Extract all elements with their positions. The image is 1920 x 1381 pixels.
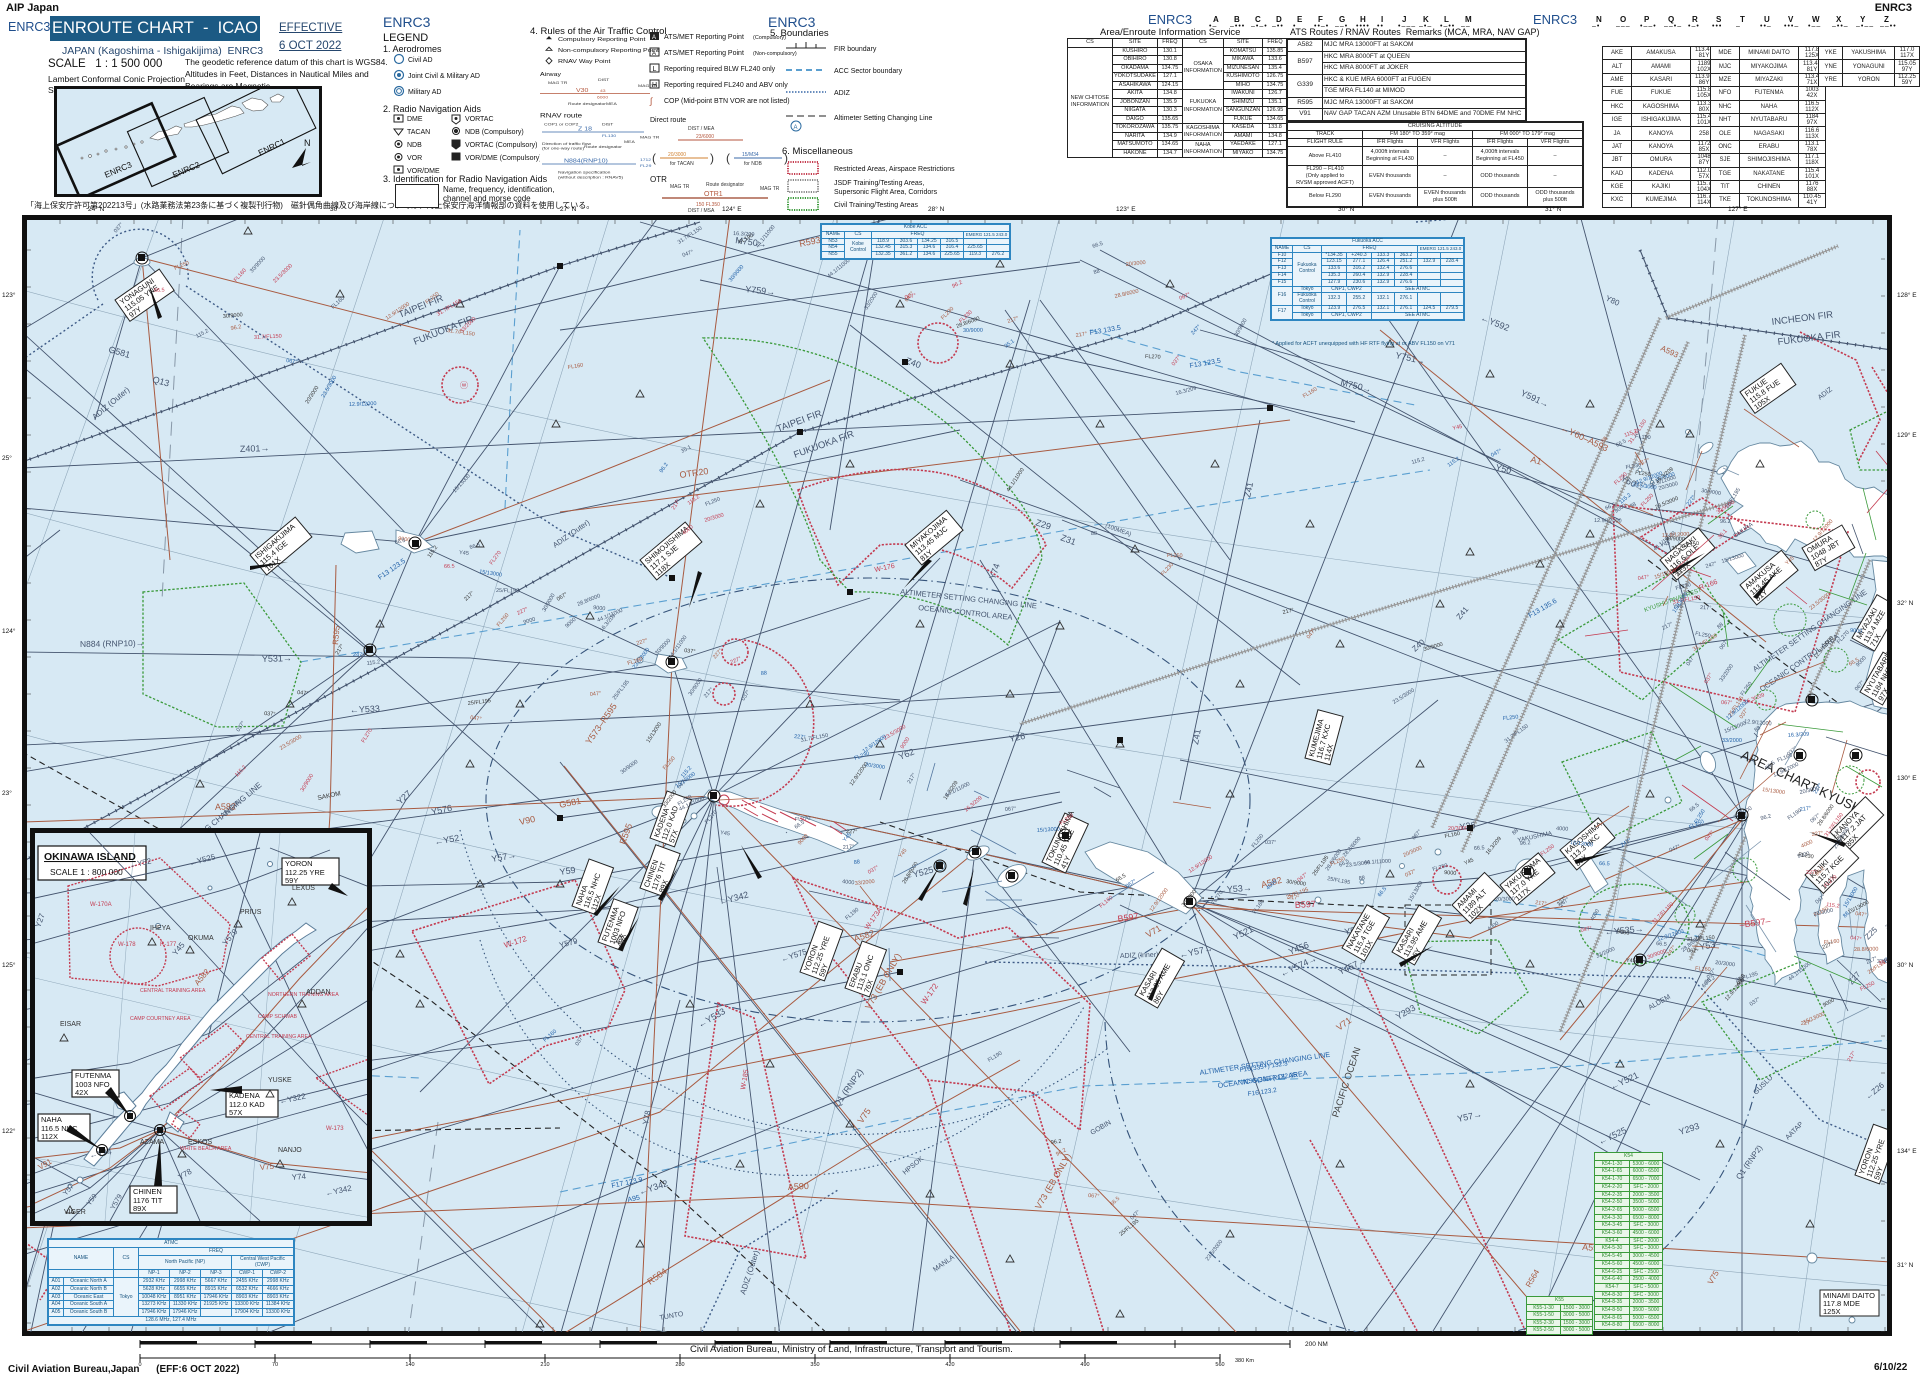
svg-text:66.5: 66.5 xyxy=(1615,438,1627,448)
svg-text:FL160: FL160 xyxy=(1098,895,1114,910)
svg-text:A593: A593 xyxy=(1659,344,1680,360)
svg-text:16.3/209: 16.3/209 xyxy=(1485,836,1503,856)
svg-text:F13 123.5: F13 123.5 xyxy=(1189,358,1221,370)
svg-text:V90: V90 xyxy=(518,814,536,827)
svg-text:4000: 4000 xyxy=(1556,826,1569,833)
svg-text:15/13000: 15/13000 xyxy=(1762,787,1786,796)
svg-text:V71: V71 xyxy=(1144,923,1163,940)
svg-text:Y579: Y579 xyxy=(558,936,579,950)
svg-text:4000: 4000 xyxy=(1590,908,1601,922)
svg-text:FL270: FL270 xyxy=(1836,630,1851,646)
svg-text:OKINAWA ISLAND: OKINAWA ISLAND xyxy=(44,851,136,863)
svg-text:25/FL195: 25/FL195 xyxy=(468,698,492,707)
svg-text:WHITE BEACH AREA: WHITE BEACH AREA xyxy=(180,1146,232,1152)
svg-text:TUNTO: TUNTO xyxy=(659,1311,684,1322)
svg-text:NANJO: NANJO xyxy=(278,1147,302,1154)
svg-text:Q1 (RNP2): Q1 (RNP2) xyxy=(1734,1143,1764,1181)
svg-text:12.9/12000: 12.9/12000 xyxy=(1188,854,1214,874)
svg-text:F13 123.5: F13 123.5 xyxy=(377,558,407,582)
svg-text:FL250: FL250 xyxy=(705,496,722,507)
svg-text:115.2: 115.2 xyxy=(1447,456,1461,469)
svg-text:OMURA: OMURA xyxy=(1733,522,1755,540)
svg-text:Y80: Y80 xyxy=(1604,294,1621,308)
svg-text:FL250: FL250 xyxy=(1540,844,1556,858)
svg-text:33/2000: 33/2000 xyxy=(855,879,875,887)
svg-text:Y45: Y45 xyxy=(1452,424,1463,432)
svg-text:20/3000: 20/3000 xyxy=(1495,896,1515,903)
svg-text:IHEYA: IHEYA xyxy=(150,925,171,932)
svg-text:247°: 247° xyxy=(1620,838,1633,849)
svg-text:←Y57→: ←Y57→ xyxy=(1178,943,1213,960)
svg-text:PACIFIC OCEAN: PACIFIC OCEAN xyxy=(1330,1046,1363,1119)
svg-text:FL250: FL250 xyxy=(662,756,677,772)
svg-text:30/9000: 30/9000 xyxy=(223,312,243,320)
svg-text:Y74: Y74 xyxy=(291,1172,307,1182)
svg-text:217°: 217° xyxy=(1661,621,1674,632)
svg-text:FL250: FL250 xyxy=(1740,681,1754,697)
svg-text:490: 490 xyxy=(1080,1362,1089,1366)
svg-text:067°: 067° xyxy=(1719,638,1731,651)
svg-text:Z41: Z41 xyxy=(1190,728,1203,745)
svg-text:89X: 89X xyxy=(133,1204,146,1213)
svg-text:ⓦ: ⓦ xyxy=(460,381,468,390)
svg-text:23.5/3000: 23.5/3000 xyxy=(321,375,339,399)
svg-text:037°: 037° xyxy=(684,648,696,655)
svg-text:M750→: M750→ xyxy=(1340,377,1373,394)
svg-text:Z29: Z29 xyxy=(1034,517,1052,531)
svg-text:247°: 247° xyxy=(1190,324,1202,336)
svg-text:067°: 067° xyxy=(556,592,569,603)
svg-text:Z25: Z25 xyxy=(1863,925,1880,942)
svg-text:037°: 037° xyxy=(741,689,752,702)
svg-text:W-178: W-178 xyxy=(118,942,136,948)
svg-text:047°: 047° xyxy=(682,249,695,259)
svg-text:067°: 067° xyxy=(1005,806,1017,813)
svg-text:←Y533: ←Y533 xyxy=(350,703,381,715)
svg-text:FL160: FL160 xyxy=(567,363,583,371)
svg-text:GOBIN: GOBIN xyxy=(1090,1119,1113,1136)
svg-text:57X: 57X xyxy=(229,1108,242,1117)
svg-text:W-173: W-173 xyxy=(326,1126,344,1132)
svg-text:FL160: FL160 xyxy=(1302,387,1318,400)
svg-text:15/13000: 15/13000 xyxy=(1802,1011,1825,1025)
svg-text:CENTRAL TRAINING AREA: CENTRAL TRAINING AREA xyxy=(246,1034,312,1040)
svg-text:047°: 047° xyxy=(1637,574,1649,582)
svg-text:037°: 037° xyxy=(867,865,880,876)
svg-text:16.3/209: 16.3/209 xyxy=(1788,732,1810,739)
svg-text:23.5/3000: 23.5/3000 xyxy=(1346,860,1371,869)
svg-text:15/13000: 15/13000 xyxy=(1654,567,1678,580)
svg-text:Z31: Z31 xyxy=(1059,532,1077,547)
svg-text:FL230: FL230 xyxy=(940,306,955,321)
svg-text:037°: 037° xyxy=(1265,840,1276,846)
svg-text:88: 88 xyxy=(1091,531,1097,537)
svg-text:037°: 037° xyxy=(1704,672,1715,685)
svg-text:YORON: YORON xyxy=(285,859,313,868)
svg-text:047°: 047° xyxy=(1850,935,1862,943)
svg-text:FL190: FL190 xyxy=(1787,808,1803,822)
svg-text:66.5: 66.5 xyxy=(1474,845,1485,852)
svg-text:FL250: FL250 xyxy=(1640,493,1655,509)
svg-text:9000: 9000 xyxy=(523,617,536,626)
svg-text:9000: 9000 xyxy=(564,617,577,630)
svg-text:Y74: Y74 xyxy=(987,562,1001,580)
svg-text:037°: 037° xyxy=(1404,868,1417,878)
svg-text:28.8/6000: 28.8/6000 xyxy=(1854,947,1879,953)
svg-text:067°: 067° xyxy=(286,358,298,366)
svg-text:88: 88 xyxy=(1511,828,1520,837)
svg-text:GUSLU: GUSLU xyxy=(1752,1074,1774,1096)
svg-text:FL250: FL250 xyxy=(1859,981,1876,993)
svg-text:067°: 067° xyxy=(1125,878,1138,889)
svg-text:33/2000: 33/2000 xyxy=(1722,738,1742,744)
svg-text:217°: 217° xyxy=(463,590,475,602)
svg-text:247°: 247° xyxy=(353,652,365,658)
svg-text:12.9/12000: 12.9/12000 xyxy=(1744,719,1772,727)
svg-text:247°: 247° xyxy=(1705,561,1718,570)
svg-text:067°: 067° xyxy=(1411,829,1423,841)
svg-text:Y759→: Y759→ xyxy=(745,284,776,297)
svg-text:Y57→: Y57→ xyxy=(1456,1109,1483,1124)
svg-text:88: 88 xyxy=(1900,657,1906,663)
svg-text:R593: R593 xyxy=(798,235,821,249)
svg-text:25/FL195: 25/FL195 xyxy=(612,679,631,701)
svg-text:Y59: Y59 xyxy=(559,865,576,877)
svg-text:Z401→: Z401→ xyxy=(240,443,270,454)
svg-text:FUTENMA: FUTENMA xyxy=(75,1071,111,1080)
svg-text:20/3000: 20/3000 xyxy=(1402,845,1423,859)
svg-text:047°: 047° xyxy=(590,691,602,698)
svg-text:G581: G581 xyxy=(107,344,131,360)
svg-text:66.5: 66.5 xyxy=(469,542,481,551)
svg-text:←Y342: ←Y342 xyxy=(718,889,750,906)
svg-text:20/3000: 20/3000 xyxy=(1715,960,1735,968)
svg-text:217°: 217° xyxy=(1007,316,1020,325)
svg-text:0: 0 xyxy=(138,1338,142,1340)
svg-text:Y573–R595: Y573–R595 xyxy=(583,701,618,746)
svg-text:Q13: Q13 xyxy=(151,374,170,388)
svg-text:ADDAN: ADDAN xyxy=(306,989,331,996)
svg-text:FL160: FL160 xyxy=(233,268,248,284)
svg-text:9000: 9000 xyxy=(1614,503,1628,515)
svg-text:28.8/6000: 28.8/6000 xyxy=(1114,289,1139,300)
svg-text:Y293: Y293 xyxy=(1394,1003,1417,1022)
svg-text:←Y574→: ←Y574→ xyxy=(1279,953,1319,979)
svg-text:560: 560 xyxy=(1215,1362,1224,1366)
svg-text:SAKOM: SAKOM xyxy=(317,790,341,802)
svg-text:FL190: FL190 xyxy=(844,907,860,922)
svg-text:210: 210 xyxy=(540,1362,549,1366)
svg-text:←Y52: ←Y52 xyxy=(434,833,460,847)
svg-text:20/3000: 20/3000 xyxy=(865,762,886,771)
svg-text:4000: 4000 xyxy=(842,879,855,886)
svg-text:A95: A95 xyxy=(627,1194,641,1203)
svg-text:20/3000: 20/3000 xyxy=(704,512,725,524)
svg-text:120: 120 xyxy=(825,1338,836,1340)
svg-text:CHINEN: CHINEN xyxy=(133,1187,162,1196)
svg-text:12.9/12000: 12.9/12000 xyxy=(1594,518,1622,524)
svg-text:047°: 047° xyxy=(1704,830,1716,843)
svg-text:Y45: Y45 xyxy=(459,550,469,557)
svg-text:227°: 227° xyxy=(636,638,649,647)
svg-text:FL270: FL270 xyxy=(704,810,719,826)
svg-text:←Y533: ←Y533 xyxy=(696,1006,727,1030)
svg-text:ADIZ (Outer): ADIZ (Outer) xyxy=(1439,202,1486,220)
svg-text:31.7/FL150: 31.7/FL150 xyxy=(1651,901,1675,925)
svg-text:96.2: 96.2 xyxy=(1520,840,1531,847)
svg-text:047°: 047° xyxy=(1490,448,1503,459)
svg-text:FL250: FL250 xyxy=(1503,714,1519,722)
svg-text:F16 123.2: F16 123.2 xyxy=(1247,1087,1277,1098)
svg-text:59Y: 59Y xyxy=(285,876,298,885)
svg-text:FL250: FL250 xyxy=(173,260,190,272)
svg-text:33/2000: 33/2000 xyxy=(864,291,880,311)
svg-text:←Z26: ←Z26 xyxy=(1864,1080,1887,1101)
svg-text:FL250: FL250 xyxy=(1688,819,1705,831)
svg-text:←Y592: ←Y592 xyxy=(1479,313,1511,334)
svg-text:115.2: 115.2 xyxy=(195,328,210,340)
svg-text:25/FL195: 25/FL195 xyxy=(496,588,519,594)
svg-text:96.2: 96.2 xyxy=(659,462,670,474)
svg-text:115.2: 115.2 xyxy=(687,494,701,507)
svg-text:V71: V71 xyxy=(1334,1015,1353,1032)
svg-text:66.5: 66.5 xyxy=(444,564,455,570)
svg-text:9000: 9000 xyxy=(1822,998,1836,1009)
svg-text:66.5: 66.5 xyxy=(1377,886,1388,898)
svg-text:227°: 227° xyxy=(1806,870,1817,876)
svg-text:227°: 227° xyxy=(712,648,724,660)
svg-text:35.1: 35.1 xyxy=(1885,919,1897,930)
svg-text:←Y525: ←Y525 xyxy=(1597,1125,1628,1147)
svg-text:16.3/209: 16.3/209 xyxy=(1175,386,1197,397)
svg-text:217°: 217° xyxy=(671,498,682,511)
svg-text:217°: 217° xyxy=(703,687,715,699)
svg-text:217°: 217° xyxy=(907,772,918,785)
svg-text:ESKOS: ESKOS xyxy=(188,1139,212,1146)
svg-text:31.7/FL150: 31.7/FL150 xyxy=(254,334,282,341)
svg-text:A1: A1 xyxy=(1530,454,1543,466)
svg-text:9000: 9000 xyxy=(1850,628,1863,635)
svg-text:20/3000: 20/3000 xyxy=(1813,908,1834,918)
svg-text:16.3/209: 16.3/209 xyxy=(733,231,755,238)
svg-text:FL270: FL270 xyxy=(361,728,374,744)
svg-text:Y521: Y521 xyxy=(1232,924,1255,942)
svg-text:30/9000: 30/9000 xyxy=(688,677,704,697)
svg-text:217°: 217° xyxy=(1847,1050,1858,1063)
svg-text:30/9000: 30/9000 xyxy=(1701,488,1722,497)
svg-text:W-172: W-172 xyxy=(503,934,529,950)
svg-text:30/9000: 30/9000 xyxy=(728,264,745,283)
svg-text:66.5: 66.5 xyxy=(394,538,406,546)
svg-text:067°: 067° xyxy=(1687,948,1699,955)
svg-text:FL250: FL250 xyxy=(1167,553,1183,559)
svg-text:ADIZ (Outer): ADIZ (Outer) xyxy=(91,385,132,422)
svg-text:280: 280 xyxy=(675,1362,684,1366)
svg-text:30/9000: 30/9000 xyxy=(1234,318,1249,338)
svg-text:96.2: 96.2 xyxy=(1720,519,1731,525)
svg-text:96.2: 96.2 xyxy=(1760,814,1772,822)
svg-text:217°: 217° xyxy=(1700,605,1712,612)
svg-text:35.1: 35.1 xyxy=(1717,528,1729,540)
svg-text:15/13000: 15/13000 xyxy=(1408,880,1425,903)
svg-text:FL250: FL250 xyxy=(1251,833,1265,849)
svg-text:35.1: 35.1 xyxy=(680,445,692,455)
svg-text:Z41: Z41 xyxy=(1455,605,1471,622)
svg-text:420: 420 xyxy=(945,1362,954,1366)
svg-text:30/9000: 30/9000 xyxy=(620,759,640,776)
svg-text:FL190: FL190 xyxy=(1635,434,1651,441)
svg-text:217°: 217° xyxy=(1891,698,1902,704)
svg-text:Y50: Y50 xyxy=(1495,462,1513,476)
svg-text:15/13000: 15/13000 xyxy=(1724,721,1748,735)
svg-text:115.2: 115.2 xyxy=(234,765,248,779)
svg-text:Z41: Z41 xyxy=(1242,481,1255,498)
svg-text:HPSOK: HPSOK xyxy=(902,1155,926,1176)
svg-text:160: 160 xyxy=(1055,1338,1066,1340)
svg-text:Y45: Y45 xyxy=(898,848,909,859)
svg-text:217°: 217° xyxy=(1282,608,1294,616)
svg-text:44.1/11000: 44.1/11000 xyxy=(826,258,851,280)
svg-text:V75: V75 xyxy=(1706,1269,1721,1286)
svg-text:FL160: FL160 xyxy=(1252,899,1266,915)
svg-text:F13 133.5: F13 133.5 xyxy=(1089,325,1121,337)
svg-text:F13 135.6: F13 135.6 xyxy=(1528,598,1559,620)
svg-text:Y45: Y45 xyxy=(720,830,731,837)
svg-text:4000: 4000 xyxy=(1800,839,1814,850)
svg-text:Y751→: Y751→ xyxy=(1395,350,1426,366)
svg-text:FL270: FL270 xyxy=(1145,354,1161,361)
svg-text:Y27: Y27 xyxy=(395,788,414,806)
svg-text:ADIZ (Outer): ADIZ (Outer) xyxy=(551,517,592,549)
svg-text:30/9000: 30/9000 xyxy=(1647,948,1668,960)
svg-text:31.7/FL150: 31.7/FL150 xyxy=(447,328,475,338)
svg-text:380 Km: 380 Km xyxy=(1235,1358,1254,1364)
svg-text:Y456: Y456 xyxy=(1287,940,1310,957)
svg-text:047°: 047° xyxy=(297,690,309,697)
svg-text:23.5/3000: 23.5/3000 xyxy=(272,263,294,284)
svg-text:35.1: 35.1 xyxy=(1878,959,1890,967)
svg-text:FL190: FL190 xyxy=(987,1051,1003,1064)
svg-text:30/9000: 30/9000 xyxy=(300,773,316,793)
svg-text:(100MEA): (100MEA) xyxy=(1104,523,1131,538)
svg-text:30/9000: 30/9000 xyxy=(542,593,557,613)
svg-text:FL230: FL230 xyxy=(1675,582,1692,592)
svg-text:AATAP: AATAP xyxy=(1784,1121,1805,1142)
svg-text:037°: 037° xyxy=(264,711,276,718)
svg-text:047°: 047° xyxy=(1814,894,1827,906)
svg-text:15/13000: 15/13000 xyxy=(646,722,664,745)
svg-text:88: 88 xyxy=(1716,622,1725,631)
svg-text:23.5/3000: 23.5/3000 xyxy=(279,734,303,752)
svg-text:115.2: 115.2 xyxy=(366,659,380,667)
svg-text:YUSKE: YUSKE xyxy=(268,1077,292,1084)
svg-text:15/13000: 15/13000 xyxy=(479,569,503,579)
svg-text:FUKUOKA FIR: FUKUOKA FIR xyxy=(1777,329,1841,348)
svg-text:35.1: 35.1 xyxy=(1004,338,1016,349)
svg-text:MANLA: MANLA xyxy=(932,1254,956,1274)
svg-text:FL230: FL230 xyxy=(1160,562,1175,578)
svg-text:200: 200 xyxy=(1285,1338,1296,1340)
svg-text:15/13000: 15/13000 xyxy=(452,473,472,494)
svg-text:W-185: W-185 xyxy=(740,1069,750,1091)
svg-text:9000: 9000 xyxy=(1444,870,1457,877)
svg-text:G581: G581 xyxy=(558,796,582,810)
svg-text:FL250: FL250 xyxy=(1695,631,1711,640)
svg-text:ADIZ (Inner): ADIZ (Inner) xyxy=(1120,952,1159,960)
svg-text:OTR20: OTR20 xyxy=(679,466,709,480)
svg-text:047°: 047° xyxy=(470,715,482,723)
svg-text:28.8/6000: 28.8/6000 xyxy=(1342,836,1363,858)
svg-text:25/FL195: 25/FL195 xyxy=(1118,1218,1140,1237)
svg-text:037°: 037° xyxy=(575,1034,586,1047)
svg-text:31.7/FL150: 31.7/FL150 xyxy=(1504,723,1530,744)
svg-text:96.2: 96.2 xyxy=(951,280,963,290)
svg-text:OKUMA: OKUMA xyxy=(188,935,214,942)
svg-text:W-172: W-172 xyxy=(919,981,940,1006)
svg-text:W-170A: W-170A xyxy=(90,902,112,908)
svg-text:047°: 047° xyxy=(1686,654,1697,667)
svg-text:B597: B597 xyxy=(1117,911,1139,924)
svg-text:FL160: FL160 xyxy=(330,296,346,311)
svg-text:88: 88 xyxy=(1093,269,1100,276)
svg-text:40: 40 xyxy=(366,1338,374,1340)
svg-text:R595: R595 xyxy=(617,822,634,846)
svg-text:AZAMA: AZAMA xyxy=(140,1139,164,1146)
svg-text:88: 88 xyxy=(1359,875,1366,882)
svg-text:66.5: 66.5 xyxy=(1599,861,1610,867)
svg-text:227°: 227° xyxy=(846,829,858,835)
svg-text:66.5: 66.5 xyxy=(154,287,165,294)
svg-text:SCALE 1 : 800 000: SCALE 1 : 800 000 xyxy=(50,867,123,877)
svg-text:W-176: W-176 xyxy=(874,563,896,574)
svg-text:–B597–: –B597– xyxy=(1739,916,1771,930)
svg-text:Y62: Y62 xyxy=(897,747,916,762)
svg-text:067°: 067° xyxy=(1179,292,1192,302)
svg-text:FL270: FL270 xyxy=(489,550,503,566)
svg-text:42X: 42X xyxy=(75,1088,88,1097)
svg-text:INCHEON FIR: INCHEON FIR xyxy=(1771,310,1834,328)
svg-text:30/9000: 30/9000 xyxy=(963,328,983,334)
svg-text:96.2: 96.2 xyxy=(1051,1139,1062,1146)
svg-text:20/3000: 20/3000 xyxy=(1126,260,1146,268)
svg-text:CENTRAL TRAINING AREA: CENTRAL TRAINING AREA xyxy=(140,988,206,994)
svg-text:33/2000: 33/2000 xyxy=(1719,663,1735,683)
svg-text:NAHA: NAHA xyxy=(41,1115,62,1124)
svg-text:037°: 037° xyxy=(113,222,125,235)
svg-text:ADIZ: ADIZ xyxy=(1817,386,1834,402)
svg-text:037°: 037° xyxy=(236,720,247,733)
svg-text:23.5/3000: 23.5/3000 xyxy=(1205,1239,1225,1262)
svg-text:44.1/11000: 44.1/11000 xyxy=(1006,467,1026,493)
svg-text:20/3000: 20/3000 xyxy=(305,385,321,405)
svg-text:R595: R595 xyxy=(331,625,342,645)
svg-text:9000: 9000 xyxy=(593,605,606,612)
svg-text:44.1/11000: 44.1/11000 xyxy=(1787,961,1812,983)
svg-text:Y45: Y45 xyxy=(1463,857,1474,866)
svg-text:Y531→: Y531→ xyxy=(262,653,292,664)
svg-text:R584: R584 xyxy=(645,1266,668,1287)
svg-text:←Y521: ←Y521 xyxy=(1609,1070,1640,1092)
svg-text:FL250: FL250 xyxy=(496,612,511,628)
svg-text:Y57→: Y57→ xyxy=(491,850,517,864)
svg-text:CAMP SCHWAB: CAMP SCHWAB xyxy=(258,1014,297,1020)
svg-text:A590: A590 xyxy=(788,1181,810,1192)
svg-text:V75: V75 xyxy=(855,1106,872,1125)
svg-text:FL270: FL270 xyxy=(1211,890,1225,906)
svg-text:V73 (EB ONLY): V73 (EB ONLY) xyxy=(1033,1152,1073,1211)
svg-text:200 NM: 200 NM xyxy=(1305,1341,1328,1348)
svg-text:125X: 125X xyxy=(1823,1307,1841,1316)
